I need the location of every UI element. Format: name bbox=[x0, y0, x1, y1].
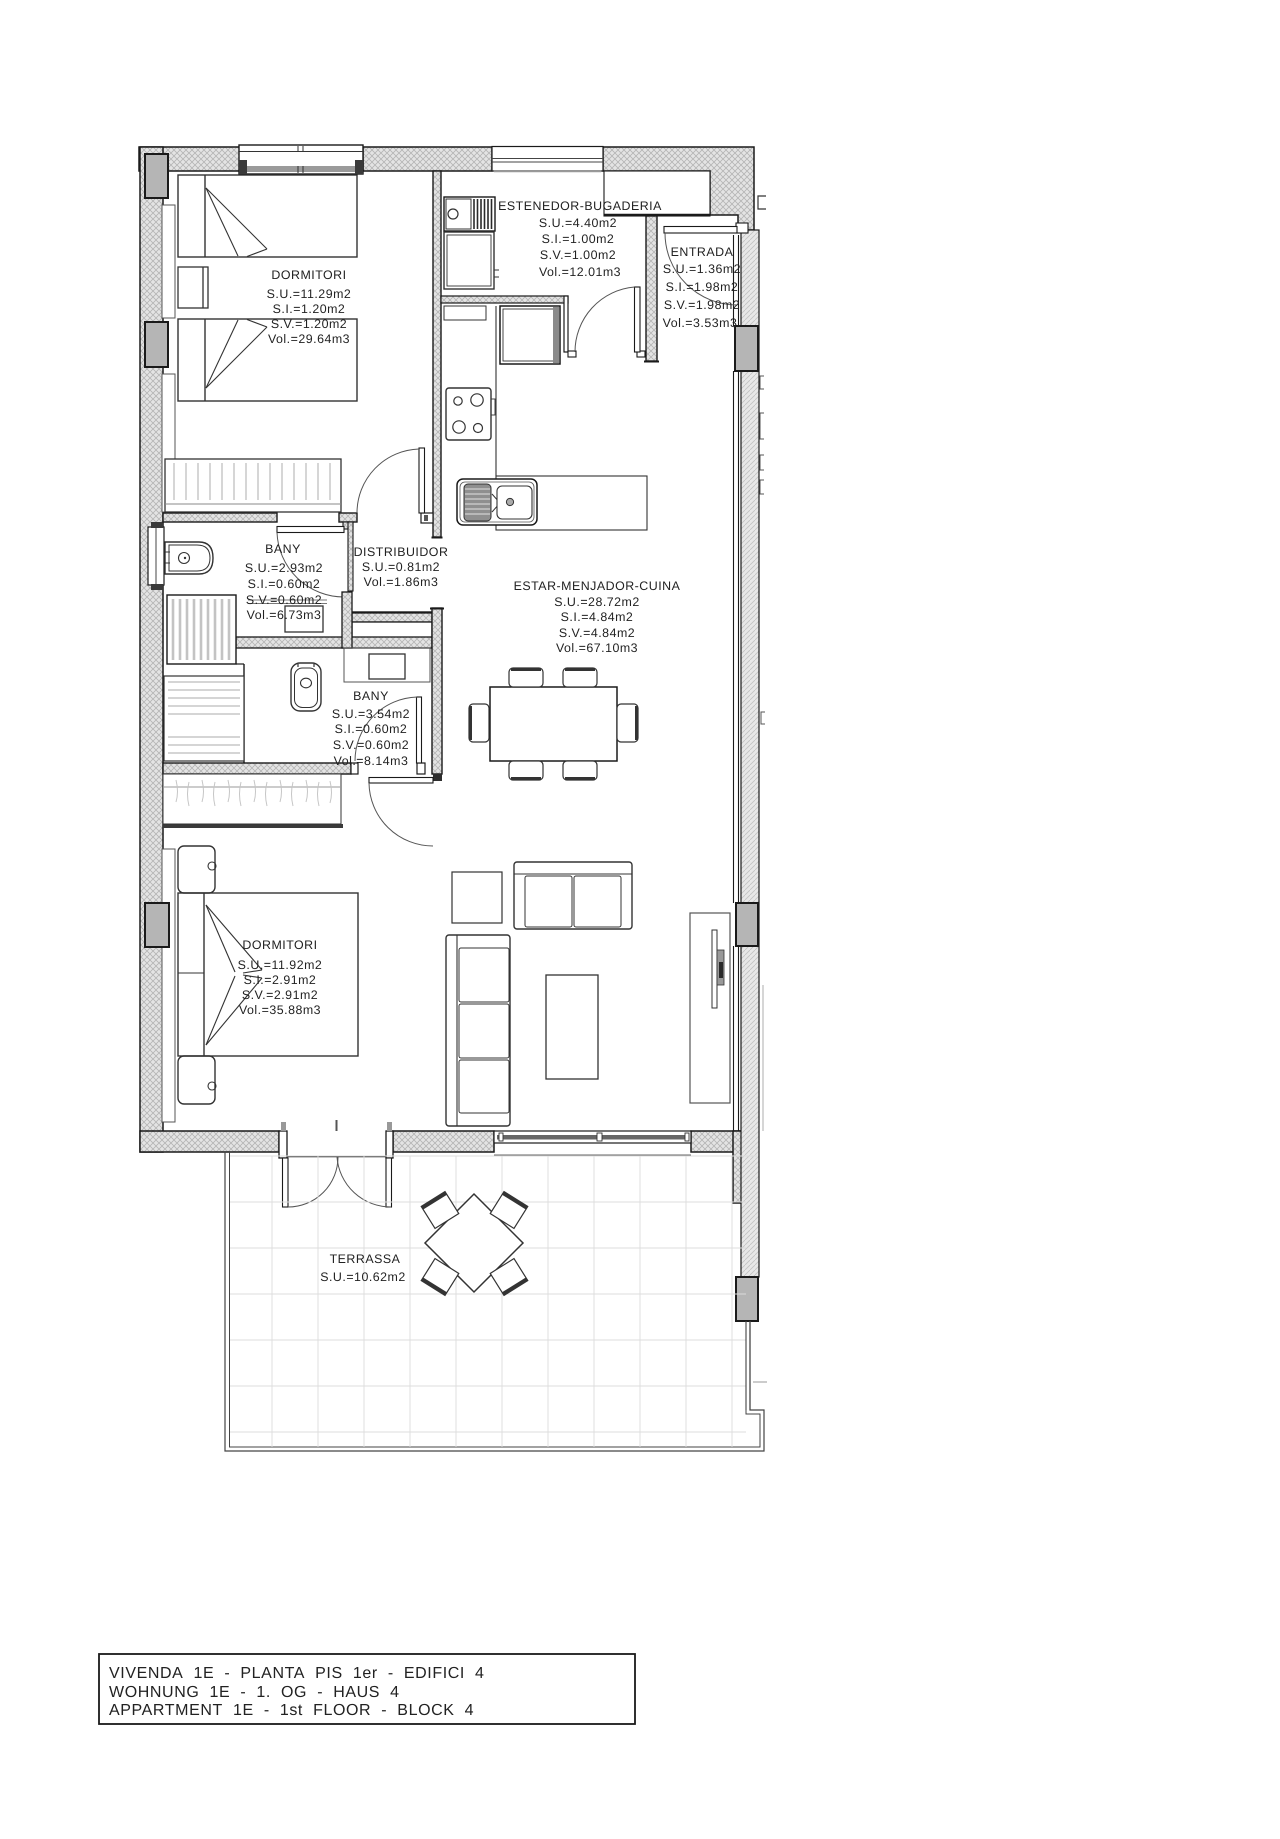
svg-text:Vol.=1.86m3: Vol.=1.86m3 bbox=[364, 575, 439, 589]
svg-text:APPARTMENT 1E - 1st FLOOR: APPARTMENT 1E - 1st FLOOR - BLOCK 4 bbox=[109, 1702, 474, 1719]
svg-text:S.I.=1.00m2: S.I.=1.00m2 bbox=[542, 232, 615, 246]
svg-text:S.U.=10.62m2: S.U.=10.62m2 bbox=[320, 1270, 406, 1284]
svg-text:S.V.=1.00m2: S.V.=1.00m2 bbox=[540, 248, 616, 262]
svg-text:S.V.=1.20m2: S.V.=1.20m2 bbox=[271, 317, 347, 331]
svg-text:S.I.=0.60m2: S.I.=0.60m2 bbox=[335, 722, 408, 736]
svg-text:S.U.=11.29m2: S.U.=11.29m2 bbox=[267, 287, 352, 301]
svg-text:ENTRADA: ENTRADA bbox=[671, 245, 734, 259]
svg-text:S.V.=4.84m2: S.V.=4.84m2 bbox=[559, 626, 635, 640]
svg-text:Vol.=67.10m3: Vol.=67.10m3 bbox=[556, 641, 638, 655]
svg-text:ESTENEDOR-BUGADERIA: ESTENEDOR-BUGADERIA bbox=[498, 199, 662, 213]
svg-text:Vol.=6.73m3: Vol.=6.73m3 bbox=[247, 608, 322, 622]
svg-text:S.U.=3.54m2: S.U.=3.54m2 bbox=[332, 707, 410, 721]
svg-text:S.V.=0.60m2: S.V.=0.60m2 bbox=[246, 593, 322, 607]
svg-text:Vol.=3.53m3: Vol.=3.53m3 bbox=[663, 316, 738, 330]
svg-text:BANY: BANY bbox=[353, 689, 389, 703]
svg-text:S.I.=4.84m2: S.I.=4.84m2 bbox=[561, 610, 634, 624]
svg-text:S.V.=1.98m2: S.V.=1.98m2 bbox=[664, 298, 740, 312]
svg-text:S.V.=2.91m2: S.V.=2.91m2 bbox=[242, 988, 318, 1002]
svg-text:ESTAR-MENJADOR-CUINA: ESTAR-MENJADOR-CUINA bbox=[514, 579, 681, 593]
svg-text:VIVENDA 1E - PLANTA PIS 1: VIVENDA 1E - PLANTA PIS 1er - EDIFICI 4 bbox=[109, 1665, 485, 1682]
svg-text:S.U.=4.40m2: S.U.=4.40m2 bbox=[539, 216, 617, 230]
svg-text:Vol.=8.14m3: Vol.=8.14m3 bbox=[334, 754, 409, 768]
svg-text:S.U.=2.93m2: S.U.=2.93m2 bbox=[245, 561, 323, 575]
svg-text:S.I.=1.20m2: S.I.=1.20m2 bbox=[273, 302, 346, 316]
svg-text:Vol.=29.64m3: Vol.=29.64m3 bbox=[268, 332, 350, 346]
svg-text:S.I.=0.60m2: S.I.=0.60m2 bbox=[248, 577, 321, 591]
svg-text:DISTRIBUIDOR: DISTRIBUIDOR bbox=[354, 545, 449, 559]
svg-text:DORMITORI: DORMITORI bbox=[242, 938, 317, 952]
svg-text:S.V.=0.60m2: S.V.=0.60m2 bbox=[333, 738, 409, 752]
svg-text:TERRASSA: TERRASSA bbox=[330, 1252, 401, 1266]
svg-text:Vol.=12.01m3: Vol.=12.01m3 bbox=[539, 265, 621, 279]
svg-text:S.I.=1.98m2: S.I.=1.98m2 bbox=[666, 280, 739, 294]
svg-text:DORMITORI: DORMITORI bbox=[271, 268, 346, 282]
svg-text:S.U.=0.81m2: S.U.=0.81m2 bbox=[362, 560, 440, 574]
svg-text:S.U.=1.36m2: S.U.=1.36m2 bbox=[663, 262, 741, 276]
svg-text:S.U.=11.92m2: S.U.=11.92m2 bbox=[238, 958, 323, 972]
svg-text:Vol.=35.88m3: Vol.=35.88m3 bbox=[239, 1003, 321, 1017]
svg-text:BANY: BANY bbox=[265, 542, 301, 556]
svg-text:S.I.=2.91m2: S.I.=2.91m2 bbox=[244, 973, 317, 987]
svg-text:S.U.=28.72m2: S.U.=28.72m2 bbox=[554, 595, 640, 609]
svg-text:WOHNUNG 1E - 1. OG - HAU: WOHNUNG 1E - 1. OG - HAUS 4 bbox=[109, 1684, 400, 1701]
